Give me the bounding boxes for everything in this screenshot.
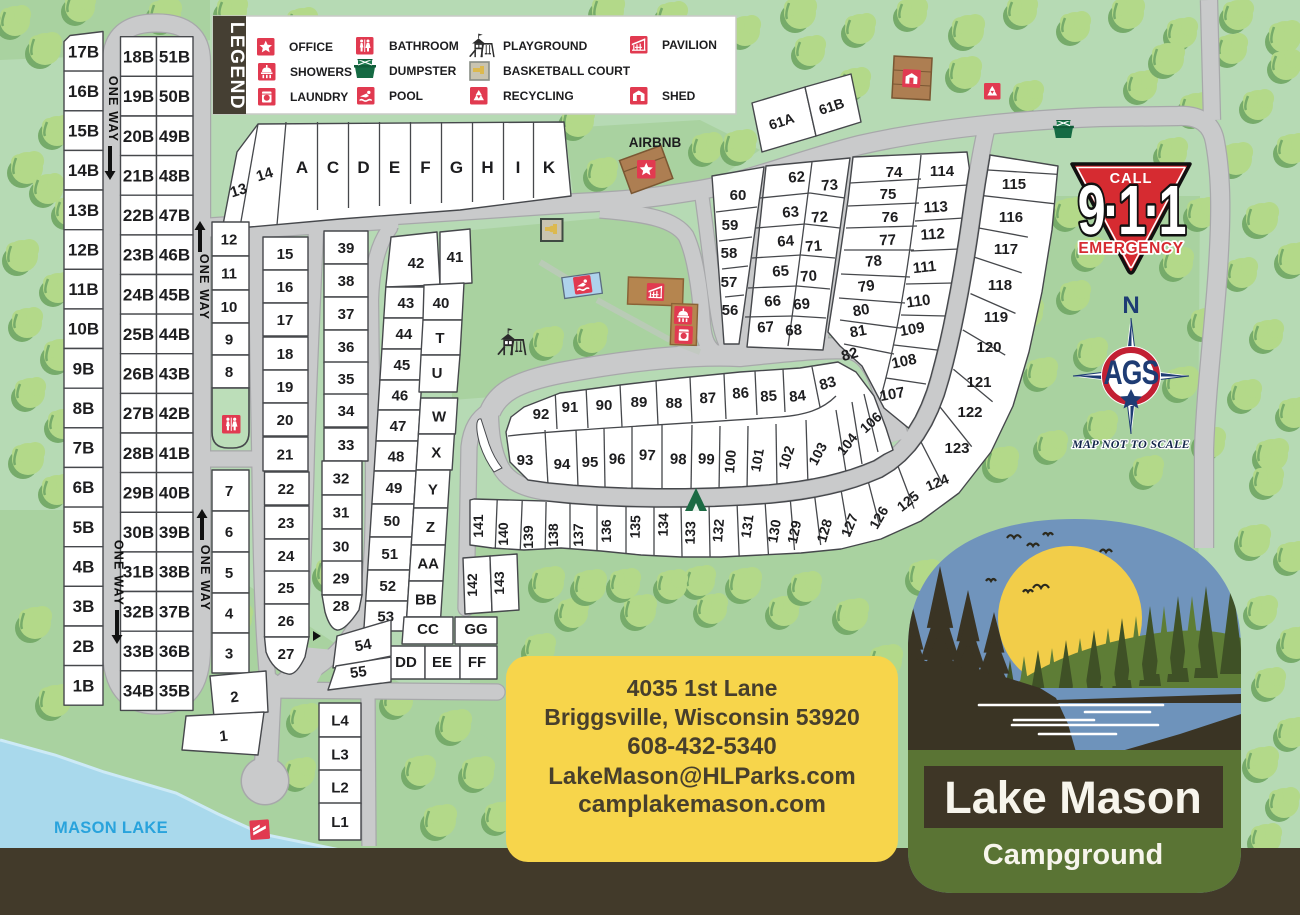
svg-text:47B: 47B xyxy=(159,206,190,225)
svg-text:A: A xyxy=(296,158,308,177)
svg-text:25B: 25B xyxy=(123,325,154,344)
svg-text:38B: 38B xyxy=(159,563,190,582)
svg-text:85: 85 xyxy=(760,387,778,405)
svg-text:12B: 12B xyxy=(68,240,99,259)
svg-text:H: H xyxy=(481,158,493,177)
svg-text:45: 45 xyxy=(394,357,411,374)
svg-text:MAP NOT TO SCALE: MAP NOT TO SCALE xyxy=(1071,437,1190,451)
svg-text:OFFICE: OFFICE xyxy=(289,40,333,54)
svg-text:141: 141 xyxy=(470,514,486,538)
svg-text:50: 50 xyxy=(384,513,401,530)
svg-text:51B: 51B xyxy=(159,48,190,67)
svg-text:N: N xyxy=(1122,292,1139,319)
svg-text:27: 27 xyxy=(278,646,295,663)
svg-text:79: 79 xyxy=(857,277,876,296)
svg-text:1B: 1B xyxy=(73,676,95,695)
svg-text:86: 86 xyxy=(732,384,750,402)
svg-text:67: 67 xyxy=(757,318,775,336)
svg-text:6: 6 xyxy=(225,524,233,541)
svg-text:143: 143 xyxy=(491,571,507,595)
svg-text:RECYCLING: RECYCLING xyxy=(503,89,574,103)
svg-text:89: 89 xyxy=(631,394,648,411)
svg-text:71: 71 xyxy=(805,237,823,255)
svg-text:30B: 30B xyxy=(123,523,154,542)
svg-text:9·1·1: 9·1·1 xyxy=(1078,171,1186,249)
svg-text:Z: Z xyxy=(426,519,435,536)
svg-text:C: C xyxy=(327,158,339,177)
svg-text:90: 90 xyxy=(596,397,613,414)
svg-text:77: 77 xyxy=(879,232,897,250)
svg-text:49: 49 xyxy=(386,480,403,497)
svg-text:138: 138 xyxy=(545,523,561,547)
svg-text:17B: 17B xyxy=(68,42,99,61)
svg-text:112: 112 xyxy=(920,225,945,244)
svg-text:35B: 35B xyxy=(159,682,190,701)
svg-text:36B: 36B xyxy=(159,642,190,661)
svg-text:Y: Y xyxy=(428,482,438,499)
svg-text:15: 15 xyxy=(277,246,294,263)
svg-text:BATHROOM: BATHROOM xyxy=(389,39,459,53)
svg-text:111: 111 xyxy=(912,258,937,277)
svg-text:38: 38 xyxy=(338,273,355,290)
svg-text:3B: 3B xyxy=(73,597,95,616)
svg-text:BASKETBALL COURT: BASKETBALL COURT xyxy=(503,64,631,78)
svg-text:55: 55 xyxy=(349,663,368,682)
svg-text:97: 97 xyxy=(638,447,656,465)
svg-text:66: 66 xyxy=(764,292,782,310)
svg-text:80: 80 xyxy=(852,301,871,321)
svg-text:8B: 8B xyxy=(73,399,95,418)
svg-text:62: 62 xyxy=(788,168,806,186)
svg-text:118: 118 xyxy=(988,277,1012,294)
svg-text:5B: 5B xyxy=(73,518,95,537)
svg-text:EE: EE xyxy=(432,654,452,671)
svg-text:99: 99 xyxy=(697,450,715,468)
svg-text:31: 31 xyxy=(333,505,350,522)
svg-text:29B: 29B xyxy=(123,483,154,502)
svg-text:94: 94 xyxy=(554,456,571,473)
svg-text:34: 34 xyxy=(338,403,355,420)
svg-text:78: 78 xyxy=(865,252,883,270)
svg-text:ONE WAY: ONE WAY xyxy=(198,545,212,611)
svg-text:51: 51 xyxy=(381,546,398,563)
svg-text:93: 93 xyxy=(517,452,534,469)
svg-text:K: K xyxy=(543,158,556,177)
svg-text:139: 139 xyxy=(520,525,536,549)
svg-text:42B: 42B xyxy=(159,404,190,423)
svg-text:122: 122 xyxy=(957,404,982,421)
svg-text:121: 121 xyxy=(966,374,991,391)
svg-text:133: 133 xyxy=(682,521,699,545)
svg-text:EMERGENCY: EMERGENCY xyxy=(1078,240,1183,257)
svg-text:9B: 9B xyxy=(73,359,95,378)
svg-text:74: 74 xyxy=(886,164,903,181)
svg-text:W: W xyxy=(432,409,447,426)
svg-text:115: 115 xyxy=(1002,176,1026,193)
svg-text:91: 91 xyxy=(562,399,579,416)
svg-text:GG: GG xyxy=(464,621,487,638)
svg-text:Briggsville, Wisconsin 53920: Briggsville, Wisconsin 53920 xyxy=(544,704,860,730)
svg-text:7B: 7B xyxy=(73,439,95,458)
svg-text:75: 75 xyxy=(880,186,897,203)
svg-text:57: 57 xyxy=(721,274,738,291)
svg-text:F: F xyxy=(420,158,430,177)
svg-text:60: 60 xyxy=(730,187,747,204)
svg-text:23B: 23B xyxy=(123,246,154,265)
svg-text:114: 114 xyxy=(930,163,955,180)
svg-text:134: 134 xyxy=(655,513,672,537)
svg-text:22B: 22B xyxy=(123,206,154,225)
svg-text:23: 23 xyxy=(278,515,295,532)
svg-text:117: 117 xyxy=(994,241,1018,258)
svg-text:U: U xyxy=(432,365,443,382)
svg-text:PLAYGROUND: PLAYGROUND xyxy=(503,39,588,53)
svg-text:camplakemason.com: camplakemason.com xyxy=(578,791,826,818)
svg-text:26B: 26B xyxy=(123,365,154,384)
svg-text:24B: 24B xyxy=(123,285,154,304)
svg-text:81: 81 xyxy=(849,322,868,342)
svg-text:35: 35 xyxy=(338,371,355,388)
svg-text:POOL: POOL xyxy=(389,89,423,103)
svg-text:120: 120 xyxy=(976,339,1001,356)
svg-text:43B: 43B xyxy=(159,365,190,384)
svg-text:96: 96 xyxy=(609,451,626,469)
svg-text:45B: 45B xyxy=(159,285,190,304)
svg-text:ONE WAY: ONE WAY xyxy=(112,540,126,606)
svg-text:131: 131 xyxy=(738,513,757,539)
svg-text:L3: L3 xyxy=(331,747,349,764)
svg-text:29: 29 xyxy=(333,571,350,588)
svg-text:28B: 28B xyxy=(123,444,154,463)
svg-text:95: 95 xyxy=(582,454,599,471)
svg-text:142: 142 xyxy=(464,573,480,597)
svg-text:Campground: Campground xyxy=(983,839,1163,871)
svg-text:39: 39 xyxy=(338,240,355,257)
svg-text:6B: 6B xyxy=(73,478,95,497)
svg-text:34B: 34B xyxy=(123,682,154,701)
svg-text:123: 123 xyxy=(944,440,969,457)
svg-text:68: 68 xyxy=(785,321,803,339)
svg-text:FF: FF xyxy=(468,654,486,671)
svg-text:LEGEND: LEGEND xyxy=(226,22,247,110)
svg-text:36: 36 xyxy=(338,339,355,356)
svg-text:28: 28 xyxy=(333,598,350,615)
svg-text:2: 2 xyxy=(229,689,239,707)
svg-text:59: 59 xyxy=(722,217,739,234)
svg-text:37B: 37B xyxy=(159,602,190,621)
svg-text:4: 4 xyxy=(225,606,234,623)
svg-text:9: 9 xyxy=(225,332,233,349)
svg-text:ONE WAY: ONE WAY xyxy=(197,254,211,320)
svg-text:70: 70 xyxy=(800,267,818,285)
svg-text:4B: 4B xyxy=(73,558,95,577)
svg-text:AA: AA xyxy=(417,556,439,573)
svg-text:69: 69 xyxy=(793,295,811,313)
svg-text:49B: 49B xyxy=(159,127,190,146)
svg-text:15B: 15B xyxy=(68,122,99,141)
svg-text:SHED: SHED xyxy=(662,89,696,103)
svg-text:48B: 48B xyxy=(159,166,190,185)
svg-text:39B: 39B xyxy=(159,523,190,542)
svg-text:16: 16 xyxy=(277,279,294,296)
svg-text:32: 32 xyxy=(333,471,350,488)
svg-text:31B: 31B xyxy=(123,563,154,582)
svg-text:65: 65 xyxy=(772,262,790,280)
svg-text:76: 76 xyxy=(882,209,899,226)
svg-text:1: 1 xyxy=(218,728,228,746)
svg-text:PAVILION: PAVILION xyxy=(662,38,717,52)
svg-text:11: 11 xyxy=(221,266,237,283)
svg-text:17: 17 xyxy=(277,312,294,329)
svg-text:L4: L4 xyxy=(331,713,349,730)
svg-text:37: 37 xyxy=(338,306,355,323)
svg-text:110: 110 xyxy=(905,291,931,311)
svg-text:88: 88 xyxy=(666,395,683,412)
svg-text:AGS: AGS xyxy=(1103,354,1159,392)
svg-text:40B: 40B xyxy=(159,483,190,502)
svg-text:56: 56 xyxy=(722,302,739,319)
svg-text:72: 72 xyxy=(811,208,829,226)
svg-text:41B: 41B xyxy=(159,444,190,463)
svg-text:137: 137 xyxy=(570,523,586,547)
svg-text:32B: 32B xyxy=(123,602,154,621)
svg-text:41: 41 xyxy=(447,249,464,266)
svg-text:140: 140 xyxy=(495,522,511,546)
svg-text:73: 73 xyxy=(821,176,839,194)
svg-text:11B: 11B xyxy=(68,280,98,299)
svg-text:10: 10 xyxy=(221,299,238,316)
svg-text:4035 1st Lane: 4035 1st Lane xyxy=(627,675,778,701)
svg-text:63: 63 xyxy=(782,203,800,221)
svg-text:84: 84 xyxy=(788,387,807,406)
svg-text:L1: L1 xyxy=(331,814,349,831)
svg-text:12: 12 xyxy=(221,232,238,249)
svg-text:33: 33 xyxy=(338,437,355,454)
svg-text:AIRBNB: AIRBNB xyxy=(629,135,682,150)
svg-text:3: 3 xyxy=(225,646,233,663)
svg-text:21: 21 xyxy=(277,447,294,464)
svg-text:135: 135 xyxy=(627,515,644,539)
svg-text:22: 22 xyxy=(278,481,295,498)
svg-text:132: 132 xyxy=(709,518,727,543)
svg-text:X: X xyxy=(431,445,441,462)
svg-text:LakeMason@HLParks.com: LakeMason@HLParks.com xyxy=(548,763,856,790)
svg-text:42: 42 xyxy=(408,255,425,272)
svg-text:100: 100 xyxy=(721,449,739,474)
svg-text:18B: 18B xyxy=(123,48,154,67)
svg-text:T: T xyxy=(435,330,444,347)
svg-text:27B: 27B xyxy=(123,404,154,423)
svg-text:113: 113 xyxy=(923,198,948,216)
svg-text:D: D xyxy=(357,158,369,177)
svg-text:119: 119 xyxy=(984,309,1008,326)
svg-text:BB: BB xyxy=(415,592,437,609)
svg-text:7: 7 xyxy=(225,483,233,500)
svg-text:5: 5 xyxy=(225,565,233,582)
svg-text:48: 48 xyxy=(388,449,405,466)
svg-text:33B: 33B xyxy=(123,642,154,661)
svg-text:30: 30 xyxy=(333,539,350,556)
svg-text:608-432-5340: 608-432-5340 xyxy=(627,733,776,760)
svg-text:8: 8 xyxy=(225,364,233,381)
svg-text:64: 64 xyxy=(777,232,795,250)
svg-text:E: E xyxy=(389,158,400,177)
svg-text:87: 87 xyxy=(699,390,716,408)
svg-text:20B: 20B xyxy=(123,127,154,146)
svg-text:10B: 10B xyxy=(68,320,99,339)
svg-text:25: 25 xyxy=(278,580,295,597)
svg-text:2B: 2B xyxy=(73,637,95,656)
svg-text:L2: L2 xyxy=(331,780,349,797)
svg-text:DUMPSTER: DUMPSTER xyxy=(389,64,457,78)
svg-text:24: 24 xyxy=(278,548,295,565)
svg-text:ONE WAY: ONE WAY xyxy=(106,76,120,142)
svg-text:44B: 44B xyxy=(159,325,190,344)
svg-text:MASON LAKE: MASON LAKE xyxy=(54,819,168,837)
svg-text:16B: 16B xyxy=(68,82,99,101)
svg-text:116: 116 xyxy=(999,209,1023,226)
svg-text:50B: 50B xyxy=(159,87,190,106)
svg-text:19B: 19B xyxy=(123,87,154,106)
svg-text:58: 58 xyxy=(721,245,738,262)
svg-text:92: 92 xyxy=(533,406,550,423)
svg-text:44: 44 xyxy=(396,326,413,343)
svg-text:21B: 21B xyxy=(123,166,154,185)
svg-text:I: I xyxy=(516,158,521,177)
svg-text:136: 136 xyxy=(598,519,614,543)
svg-text:26: 26 xyxy=(278,613,295,630)
svg-text:98: 98 xyxy=(669,451,687,469)
svg-text:43: 43 xyxy=(397,295,414,312)
svg-text:46B: 46B xyxy=(159,246,190,265)
svg-text:14B: 14B xyxy=(68,161,99,180)
svg-text:19: 19 xyxy=(277,379,294,396)
svg-text:20: 20 xyxy=(277,412,294,429)
svg-text:13B: 13B xyxy=(68,201,99,220)
svg-text:DD: DD xyxy=(395,654,417,671)
svg-text:47: 47 xyxy=(390,418,407,435)
svg-text:52: 52 xyxy=(379,578,396,595)
svg-text:CC: CC xyxy=(417,621,439,638)
svg-text:LAUNDRY: LAUNDRY xyxy=(290,90,348,104)
svg-text:18: 18 xyxy=(277,346,294,363)
svg-text:SHOWERS: SHOWERS xyxy=(290,65,352,79)
svg-text:Lake Mason: Lake Mason xyxy=(944,772,1202,823)
svg-text:40: 40 xyxy=(433,295,450,312)
svg-text:46: 46 xyxy=(392,388,409,405)
svg-text:G: G xyxy=(450,158,463,177)
